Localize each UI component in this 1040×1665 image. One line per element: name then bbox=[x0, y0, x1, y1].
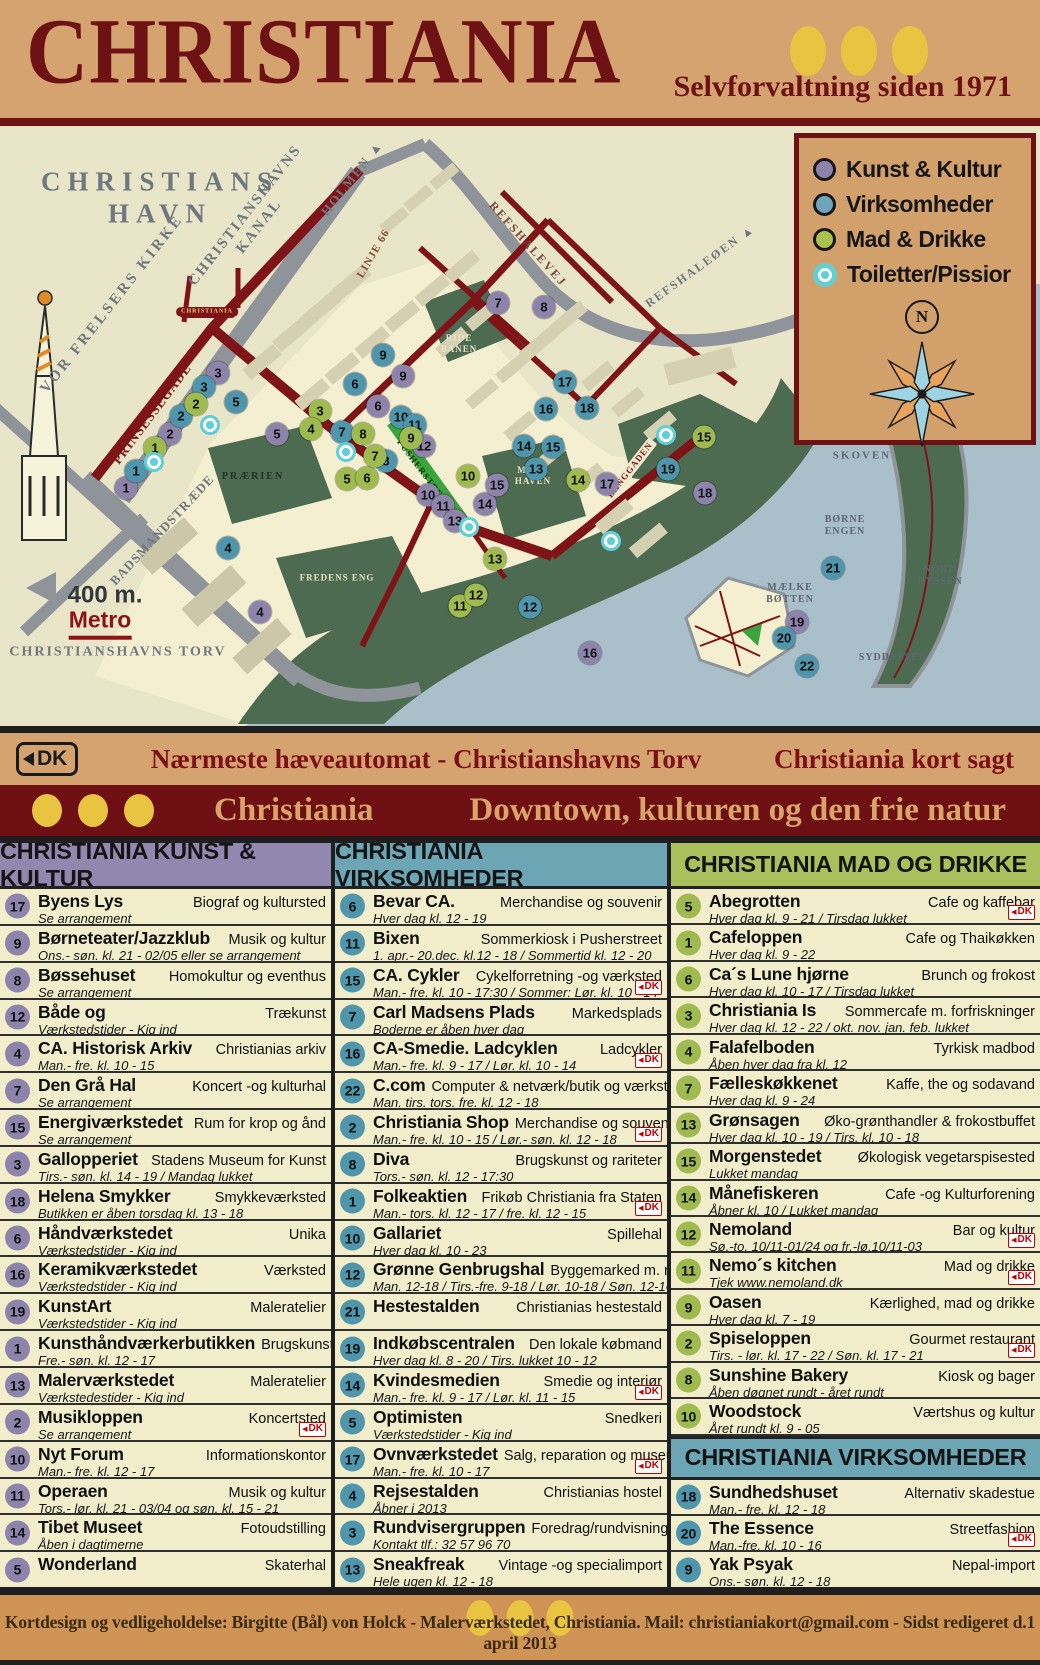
brand-name: Christiania bbox=[214, 792, 374, 829]
listing-hours: Hver dag kl. 9 - 24 bbox=[709, 1093, 1035, 1107]
map-label: RIDE BANEN bbox=[441, 333, 478, 355]
listing-row: 8Sunshine BakeryKiosk og bagerÅben døgne… bbox=[671, 1363, 1040, 1399]
listing-name: Sunshine Bakery bbox=[709, 1365, 848, 1386]
listing-row: 6HåndværkstedetUnikaVærkstedstider - Kig… bbox=[0, 1221, 331, 1258]
listing-row: 15CA. CyklerCykelforretning -og værksted… bbox=[335, 963, 667, 1000]
listing-category: Øko-grønthandler & frokostbuffet bbox=[818, 1114, 1035, 1130]
listing-row: 7Carl Madsens PladsMarkedspladsBoderne e… bbox=[335, 1000, 667, 1037]
listing-row: 3GallopperietStadens Museum for KunstTir… bbox=[0, 1147, 331, 1184]
listing-row: 10GallarietSpillehalHver dag kl. 10 - 23 bbox=[335, 1221, 667, 1258]
listing-name: The Essence bbox=[709, 1518, 814, 1539]
listing-hours: Se arrangement bbox=[38, 985, 326, 1000]
listing-number-badge: 2 bbox=[676, 1331, 701, 1356]
dankort-accepted-badge: DK bbox=[635, 1127, 662, 1142]
listing-hours: Sø.-to. 10/11-01/24 og fr.-lø.10/11-03 bbox=[709, 1239, 1035, 1253]
listing-name: Indkøbscentralen bbox=[373, 1333, 515, 1354]
legend-item: Mad & Drikke bbox=[813, 222, 1031, 257]
listing-category: Fotoudstilling bbox=[235, 1521, 326, 1537]
listing-number-badge: 13 bbox=[5, 1373, 30, 1398]
listing-category: Computer & netværk/butik og værksted bbox=[425, 1079, 667, 1095]
column-virksomheder: CHRISTIANIA VIRKSOMHEDER6Bevar CA.Mercha… bbox=[335, 843, 667, 1587]
listing-number-badge: 18 bbox=[676, 1484, 701, 1509]
dankort-accepted-badge: DK bbox=[1008, 1343, 1035, 1358]
listing-name: Operaen bbox=[38, 1481, 108, 1502]
numbered-map-marker: 9 bbox=[400, 427, 423, 450]
numbered-map-marker: 10 bbox=[457, 465, 480, 488]
listing-row: 7Den Grå HalKoncert -og kulturhalSe arra… bbox=[0, 1073, 331, 1110]
listing-hours: Ons.- søn. kl. 12 - 18 bbox=[709, 1574, 1035, 1586]
listing-name: Abegrotten bbox=[709, 891, 800, 912]
listing-category: Brunch og frokost bbox=[915, 968, 1035, 984]
listing-hours: Hver dag kl. 12 - 19 bbox=[373, 911, 662, 926]
listing-name: CA-Smedie. Ladcyklen bbox=[373, 1038, 558, 1059]
listing-name: Keramikværkstedet bbox=[38, 1259, 197, 1280]
listing-hours: Hver dag kl. 10 - 19 / Tirs. kl. 10 - 18 bbox=[709, 1130, 1035, 1144]
listing-category: Vintage -og specialimport bbox=[493, 1558, 662, 1574]
listing-row: 2MusikloppenKoncertstedSe arrangementDK bbox=[0, 1405, 331, 1442]
listing-name: Bøssehuset bbox=[38, 965, 135, 986]
dankort-accepted-badge: DK bbox=[1008, 1270, 1035, 1285]
listing-number-badge: 7 bbox=[340, 1004, 365, 1029]
legend-item: Toiletter/Pissior bbox=[813, 257, 1031, 292]
legend-label: Mad & Drikke bbox=[846, 226, 986, 253]
listing-row: 15MorgenstedetØkologisk vegetarspisested… bbox=[671, 1144, 1040, 1180]
credit-line: Kortdesign og vedligeholdelse: Birgitte … bbox=[0, 1612, 1040, 1654]
numbered-map-marker: 4 bbox=[217, 537, 240, 560]
listing-row: 9Yak PsyakNepal-importOns.- søn. kl. 12 … bbox=[671, 1552, 1040, 1586]
listing-row: 16KeramikværkstedetVærkstedVærkstedstide… bbox=[0, 1257, 331, 1294]
listing-row: 4FalafelbodenTyrkisk madbodÅben hver dag… bbox=[671, 1035, 1040, 1071]
numbered-map-marker: 17 bbox=[596, 473, 619, 496]
listing-name: Både og bbox=[38, 1002, 106, 1023]
listing-hours: Boderne er åben hver dag bbox=[373, 1022, 662, 1037]
listing-name: C.com bbox=[373, 1075, 425, 1096]
listing-number-badge: 9 bbox=[676, 1557, 701, 1582]
listing-name: Helena Smykker bbox=[38, 1186, 170, 1207]
listing-hours: Tjek www.nemoland.dk bbox=[709, 1275, 1035, 1289]
map-label: BØRNE ENGEN bbox=[825, 514, 866, 538]
listing-row: 2SpiseloppenGourmet restaurantTirs. - lø… bbox=[671, 1326, 1040, 1362]
listing-row: 1KunsthåndværkerbutikkenBrugskunstFre.- … bbox=[0, 1331, 331, 1368]
listing-row: 13MalerværkstedetMaleratelierVærkstedest… bbox=[0, 1368, 331, 1405]
listing-number-badge: 17 bbox=[340, 1447, 365, 1472]
numbered-map-marker: 13 bbox=[525, 458, 548, 481]
listing-name: Byens Lys bbox=[38, 891, 123, 912]
listing-number-badge: 5 bbox=[340, 1410, 365, 1435]
listing-category: Tyrkisk madbod bbox=[927, 1041, 1035, 1057]
numbered-map-marker: 7 bbox=[331, 421, 354, 444]
listing-number-badge: 1 bbox=[676, 930, 701, 955]
listing-name: Grønsagen bbox=[709, 1110, 800, 1131]
listing-hours: Hver dag kl. 8 - 20 / Tirs. lukket 10 - … bbox=[373, 1353, 662, 1368]
listing-row: 1CafeloppenCafe og ThaikøkkenHver dag kl… bbox=[671, 925, 1040, 961]
listing-number-badge: 10 bbox=[676, 1404, 701, 1429]
dankort-accepted-badge: DK bbox=[299, 1422, 326, 1437]
dankort-accepted-badge: DK bbox=[635, 1201, 662, 1216]
dankort-accepted-badge: DK bbox=[635, 1385, 662, 1400]
numbered-map-marker: 16 bbox=[535, 398, 558, 421]
map-label: CHRISTIANIA bbox=[176, 307, 238, 316]
numbered-map-marker: 18 bbox=[576, 397, 599, 420]
listing-row: 18SundhedshusetAlternativ skadestueMan.-… bbox=[671, 1480, 1040, 1516]
listing-number-badge: 14 bbox=[340, 1373, 365, 1398]
legend-label: Toiletter/Pissior bbox=[847, 261, 1011, 288]
listing-number-badge: 12 bbox=[340, 1262, 365, 1287]
legend-item: Virksomheder bbox=[813, 187, 1031, 222]
kort-sagt-text: Christiania kort sagt bbox=[774, 744, 1014, 775]
numbered-map-marker: 18 bbox=[694, 482, 717, 505]
atm-text: Nærmeste hæveautomat - Christianshavns T… bbox=[78, 744, 774, 775]
listing-name: Christiania Shop bbox=[373, 1112, 509, 1133]
listing-name: Fælleskøkkenet bbox=[709, 1073, 838, 1094]
numbered-map-marker: 19 bbox=[657, 458, 680, 481]
listing-name: Energiværkstedet bbox=[38, 1112, 183, 1133]
dankort-accepted-badge: DK bbox=[635, 980, 662, 995]
numbered-map-marker: 17 bbox=[554, 371, 577, 394]
listing-hours: Hver dag kl. 10 - 23 bbox=[373, 1243, 662, 1258]
numbered-map-marker: 15 bbox=[486, 474, 509, 497]
mad-drikke-circle-icon bbox=[813, 228, 836, 251]
three-dots-icon bbox=[790, 26, 928, 76]
listing-category: Markedsplads bbox=[566, 1006, 662, 1022]
listing-name: Rundvisergruppen bbox=[373, 1517, 525, 1538]
listing-category: Økologisk vegetarspisested bbox=[852, 1150, 1035, 1166]
listing-category: Merchandise og souvenir bbox=[494, 895, 662, 911]
listing-hours: Man. 12-18 / Tirs.-fre. 9-18 / Lør. 10-1… bbox=[373, 1279, 662, 1294]
listing-name: KunstArt bbox=[38, 1296, 111, 1317]
listing-category: Kaffe, the og sodavand bbox=[880, 1077, 1035, 1093]
column-mad: CHRISTIANIA MAD OG DRIKKE5AbegrottenCafe… bbox=[671, 843, 1040, 1587]
listing-hours: Se arrangement bbox=[38, 911, 326, 926]
numbered-map-marker: 14 bbox=[513, 435, 536, 458]
listing-category: Foredrag/rundvisning bbox=[525, 1521, 667, 1537]
numbered-map-marker: 15 bbox=[542, 436, 565, 459]
listing-row: 14Tibet MuseetFotoudstillingÅben i dagti… bbox=[0, 1515, 331, 1552]
listing-hours: Butikken er åben torsdag kl. 13 - 18 bbox=[38, 1206, 326, 1221]
listing-name: Musikloppen bbox=[38, 1407, 143, 1428]
listing-hours: Året rundt kl. 9 - 05 bbox=[709, 1421, 1035, 1435]
listing-number-badge: 1 bbox=[5, 1336, 30, 1361]
numbered-map-marker: 16 bbox=[579, 642, 602, 665]
listing-row: 6Bevar CA.Merchandise og souvenirHver da… bbox=[335, 889, 667, 926]
listing-row: 16CA-Smedie. LadcyklenLadcyklerMan.- fre… bbox=[335, 1036, 667, 1073]
listing-name: Månefiskeren bbox=[709, 1183, 818, 1204]
numbered-map-marker: 12 bbox=[519, 596, 542, 619]
listing-row: 18Helena SmykkerSmykkeværkstedButikken e… bbox=[0, 1184, 331, 1221]
listing-category: Spillehal bbox=[601, 1227, 662, 1243]
listing-name: Oasen bbox=[709, 1292, 762, 1313]
listing-hours: Fre.- søn. kl. 12 - 17 bbox=[38, 1353, 326, 1368]
listing-category: Christianias hestestald bbox=[510, 1300, 662, 1316]
legend-items: Kunst & KulturVirksomhederMad & DrikkeTo… bbox=[813, 152, 1031, 292]
listing-category: Brugskunst bbox=[255, 1337, 331, 1353]
toilet-marker bbox=[335, 441, 357, 463]
numbered-map-marker: 20 bbox=[773, 627, 796, 650]
listing-number-badge: 13 bbox=[676, 1112, 701, 1137]
listing-hours: 1. apr.- 20.dec. kl.12 - 18 / Sommertid … bbox=[373, 948, 662, 963]
legend-panel: Kunst & KulturVirksomhederMad & DrikkeTo… bbox=[794, 133, 1036, 445]
listing-number-badge: 11 bbox=[676, 1258, 701, 1283]
listing-hours: Værkstedstider - Kig ind bbox=[38, 1279, 326, 1294]
listing-name: Gallopperiet bbox=[38, 1149, 138, 1170]
listing-hours: Værkstedestider - Kig ind bbox=[38, 1390, 326, 1405]
listing-name: Hestestalden bbox=[373, 1296, 480, 1317]
listing-row: 3Christiania IsSommercafe m. forfrisknin… bbox=[671, 998, 1040, 1034]
numbered-map-marker: 15 bbox=[693, 426, 716, 449]
listing-category: Stadens Museum for Kunst bbox=[145, 1153, 326, 1169]
column-header: CHRISTIANIA VIRKSOMHEDER bbox=[335, 843, 667, 889]
listing-row: 8BøssehusetHomokultur og eventhusSe arra… bbox=[0, 963, 331, 1000]
listing-row: 12Grønne GenbrugshalByggemarked m. nyt/b… bbox=[335, 1257, 667, 1294]
listing-name: Falafelboden bbox=[709, 1037, 815, 1058]
map-label: SYDDYSSEN bbox=[859, 652, 927, 664]
toilet-ring-icon bbox=[813, 263, 837, 287]
map-canvas: CHRISTIANS HAVNVOR FRELSERS KIRKECHRISTI… bbox=[0, 126, 1040, 726]
listing-category: Musik og kultur bbox=[222, 1485, 326, 1501]
divider bbox=[0, 118, 1040, 126]
listing-name: Yak Psyak bbox=[709, 1554, 793, 1575]
listing-name: Kunsthåndværkerbutikken bbox=[38, 1333, 255, 1354]
numbered-map-marker: 21 bbox=[822, 557, 845, 580]
dankort-accepted-badge: DK bbox=[1008, 1532, 1035, 1547]
footer: Kortdesign og vedligeholdelse: Birgitte … bbox=[0, 1595, 1040, 1665]
listing-hours: Se arrangement bbox=[38, 1132, 326, 1147]
header: CHRISTIANIA Selvforvaltning siden 1971 bbox=[0, 0, 1040, 118]
listing-row: 7FælleskøkkenetKaffe, the og sodavandHve… bbox=[671, 1071, 1040, 1107]
listing-row: 5OptimistenSnedkeriVærkstedstider - Kig … bbox=[335, 1405, 667, 1442]
dankort-icon: DK bbox=[16, 742, 78, 776]
listing-number-badge: 14 bbox=[676, 1185, 701, 1210]
listing-category: Sommercafe m. forfriskninger bbox=[839, 1004, 1035, 1020]
numbered-map-marker: 7 bbox=[364, 445, 387, 468]
listing-name: Den Grå Hal bbox=[38, 1075, 136, 1096]
atm-banner: DK Nærmeste hæveautomat - Christianshavn… bbox=[0, 733, 1040, 785]
listing-row: 11Nemo´s kitchenMad og drikkeTjek www.ne… bbox=[671, 1253, 1040, 1289]
listing-name: Optimisten bbox=[373, 1407, 462, 1428]
listing-row: 11OperaenMusik og kulturTors.- lør. kl. … bbox=[0, 1479, 331, 1516]
listing-name: Håndværkstedet bbox=[38, 1223, 172, 1244]
kunst-kultur-circle-icon bbox=[813, 158, 836, 181]
listing-hours: Kontakt tlf.: 32 57 96 70 bbox=[373, 1537, 662, 1552]
listing-row: 11BixenSommerkiosk i Pusherstreet1. apr.… bbox=[335, 926, 667, 963]
listing-category: Sommerkiosk i Pusherstreet bbox=[475, 932, 662, 948]
listing-hours: Åben i dagtimerne bbox=[38, 1537, 326, 1552]
listing-name: Bixen bbox=[373, 928, 420, 949]
listing-hours: Ons.- søn. kl. 21 - 02/05 eller se arran… bbox=[38, 948, 326, 963]
listing-row: 1FolkeaktienFrikøb Christiania fra State… bbox=[335, 1184, 667, 1221]
listing-number-badge: 6 bbox=[340, 894, 365, 919]
listing-number-badge: 15 bbox=[676, 1149, 701, 1174]
listing-number-badge: 12 bbox=[676, 1222, 701, 1247]
numbered-map-marker: 5 bbox=[225, 391, 248, 414]
toilet-marker bbox=[655, 424, 677, 446]
listing-hours: Man.- fre. kl. 12 - 18 bbox=[709, 1502, 1035, 1516]
listing-name: Børneteater/Jazzklub bbox=[38, 928, 210, 949]
listing-name: Wonderland bbox=[38, 1554, 137, 1575]
listing-hours: Åbner i 2013 bbox=[373, 1501, 662, 1516]
numbered-map-marker: 6 bbox=[356, 467, 379, 490]
listing-name: Malerværkstedet bbox=[38, 1370, 174, 1391]
listing-category: Brugskunst og rariteter bbox=[509, 1153, 662, 1169]
numbered-map-marker: 9 bbox=[372, 344, 395, 367]
listing-number-badge: 20 bbox=[676, 1521, 701, 1546]
listing-number-badge: 19 bbox=[340, 1336, 365, 1361]
numbered-map-marker: 22 bbox=[796, 655, 819, 678]
map-label: NORD DYSSEN bbox=[917, 564, 962, 588]
listing-hours: Se arrangement bbox=[38, 1427, 326, 1442]
numbered-map-marker: 2 bbox=[185, 393, 208, 416]
listing-name: Woodstock bbox=[709, 1401, 801, 1422]
listing-name: Sundhedshuset bbox=[709, 1482, 838, 1503]
listing-hours: Værkstedstider - Kig ind bbox=[38, 1022, 326, 1037]
listing-name: Nemoland bbox=[709, 1219, 792, 1240]
listing-category: Cafe -og Kulturforening bbox=[879, 1187, 1035, 1203]
listing-number-badge: 6 bbox=[5, 1226, 30, 1251]
listing-category: Informationskontor bbox=[200, 1448, 326, 1464]
listing-number-badge: 9 bbox=[5, 931, 30, 956]
listing-category: Smykkeværksted bbox=[209, 1190, 326, 1206]
three-dots-icon bbox=[32, 794, 154, 827]
listing-name: CA. Historisk Arkiv bbox=[38, 1038, 192, 1059]
listing-row: 6Ca´s Lune hjørneBrunch og frokostHver d… bbox=[671, 962, 1040, 998]
listing-name: Folkeaktien bbox=[373, 1186, 467, 1207]
listing-row: 19KunstArtMaleratelierVærkstedstider - K… bbox=[0, 1294, 331, 1331]
listing-name: Tibet Museet bbox=[38, 1517, 142, 1538]
listing-name: Rejsestalden bbox=[373, 1481, 479, 1502]
listing-hours: Hver dag kl. 7 - 19 bbox=[709, 1312, 1035, 1326]
divider bbox=[0, 726, 1040, 733]
listing-hours: Åben hver dag fra kl. 12 bbox=[709, 1057, 1035, 1071]
listing-hours: Se arrangement bbox=[38, 1095, 326, 1110]
listing-hours: Man.- fre. kl. 9 - 17 / Lør. kl. 10 - 14 bbox=[373, 1058, 662, 1073]
listing-row: 22C.comComputer & netværk/butik og værks… bbox=[335, 1073, 667, 1110]
listing-hours: Man.- tors. kl. 12 - 17 / fre. kl. 12 - … bbox=[373, 1206, 662, 1221]
listing-name: Ca´s Lune hjørne bbox=[709, 964, 849, 985]
listing-hours: Man.- fre. kl. 9 - 17 / Lør. kl. 11 - 15 bbox=[373, 1390, 662, 1405]
listing-name: Nemo´s kitchen bbox=[709, 1255, 837, 1276]
listing-category: Unika bbox=[283, 1227, 326, 1243]
column-header: CHRISTIANIA MAD OG DRIKKE bbox=[671, 843, 1040, 889]
numbered-map-marker: 13 bbox=[484, 548, 507, 571]
listing-hours: Åbner kl. 10 / Lukket mandag bbox=[709, 1203, 1035, 1217]
listing-number-badge: 13 bbox=[340, 1557, 365, 1582]
listing-number-badge: 21 bbox=[340, 1299, 365, 1324]
dankort-accepted-badge: DK bbox=[635, 1459, 662, 1474]
numbered-map-marker: 14 bbox=[567, 469, 590, 492]
listing-category: Byggemarked m. nyt/brugt bbox=[544, 1263, 667, 1279]
listing-row: 4RejsestaldenChristianias hostelÅbner i … bbox=[335, 1479, 667, 1516]
listing-number-badge: 5 bbox=[676, 894, 701, 919]
tagline: Downtown, kulturen og den frie natur bbox=[469, 792, 1006, 829]
numbered-map-marker: 4 bbox=[249, 601, 272, 624]
listing-number-badge: 11 bbox=[5, 1483, 30, 1508]
virksomheder-circle-icon bbox=[813, 193, 836, 216]
map-label: FREDENS ENG bbox=[300, 573, 375, 584]
listing-category: Alternativ skadestue bbox=[898, 1486, 1035, 1502]
listing-hours: Hver dag kl. 9 - 22 bbox=[709, 947, 1035, 961]
listing-row: 9OasenKærlighed, mad og drikkeHver dag k… bbox=[671, 1290, 1040, 1326]
listing-number-badge: 3 bbox=[676, 1003, 701, 1028]
listing-name: Diva bbox=[373, 1149, 409, 1170]
listing-hours: Man.-fre. kl. 10 - 16 bbox=[709, 1538, 1035, 1552]
listing-category: Kærlighed, mad og drikke bbox=[864, 1296, 1035, 1312]
compass-rose-icon bbox=[864, 336, 980, 452]
listing-number-badge: 15 bbox=[340, 968, 365, 993]
subtitle: Selvforvaltning siden 1971 bbox=[674, 70, 1012, 104]
listing-hours: Værkstedstider - Kig ind bbox=[38, 1243, 326, 1258]
listing-name: CA. Cykler bbox=[373, 965, 460, 986]
listing-category: Værtshus og kultur bbox=[907, 1405, 1035, 1421]
listing-hours: Hver dag kl. 12 - 22 / okt. nov. jan. fe… bbox=[709, 1020, 1035, 1034]
listing-number-badge: 14 bbox=[5, 1520, 30, 1545]
listing-number-badge: 7 bbox=[5, 1078, 30, 1103]
legend-label: Kunst & Kultur bbox=[846, 156, 1001, 183]
listing-hours: Tirs. - lør. kl. 17 - 22 / Søn. kl. 17 -… bbox=[709, 1348, 1035, 1362]
listing-number-badge: 3 bbox=[5, 1152, 30, 1177]
listing-name: Bevar CA. bbox=[373, 891, 455, 912]
listing-number-badge: 6 bbox=[676, 967, 701, 992]
numbered-map-marker: 8 bbox=[352, 423, 375, 446]
listing-row: 4CA. Historisk ArkivChristianias arkivMa… bbox=[0, 1036, 331, 1073]
listing-name: Grønne Genbrugshal bbox=[373, 1259, 544, 1280]
listing-hours: Værkstedstider - Kig ind bbox=[373, 1427, 662, 1442]
dankort-accepted-badge: DK bbox=[1008, 905, 1035, 920]
listing-name: Kvindesmedien bbox=[373, 1370, 500, 1391]
listing-name: Spiseloppen bbox=[709, 1328, 811, 1349]
legend-item: Kunst & Kultur bbox=[813, 152, 1031, 187]
listing-category: Christianias arkiv bbox=[210, 1042, 326, 1058]
numbered-map-marker: 7 bbox=[487, 292, 510, 315]
listing-hours: Tors.- lør. kl. 21 - 03/04 og søn. kl. 1… bbox=[38, 1501, 326, 1516]
listing-row: 14KvindesmedienSmedie og interiørMan.- f… bbox=[335, 1368, 667, 1405]
toilet-marker bbox=[143, 451, 165, 473]
listing-name: Christiania Is bbox=[709, 1000, 816, 1021]
dankort-accepted-badge: DK bbox=[1008, 1233, 1035, 1248]
listing-number-badge: 3 bbox=[340, 1520, 365, 1545]
listing-number-badge: 7 bbox=[676, 1076, 701, 1101]
listing-category: Christianias hostel bbox=[538, 1485, 662, 1501]
listing-row: 8DivaBrugskunst og rariteterTors.- søn. … bbox=[335, 1147, 667, 1184]
listing-number-badge: 4 bbox=[676, 1039, 701, 1064]
column-header: CHRISTIANIA VIRKSOMHEDER bbox=[671, 1436, 1040, 1480]
numbered-map-marker: 5 bbox=[266, 423, 289, 446]
north-indicator: N bbox=[905, 300, 939, 334]
listing-number-badge: 1 bbox=[340, 1189, 365, 1214]
listing-category: Homokultur og eventhus bbox=[163, 969, 326, 985]
listing-row: 3RundvisergruppenForedrag/rundvisningKon… bbox=[335, 1515, 667, 1552]
listing-hours: Man.- fre. kl. 10 - 15 / Lør.- søn. kl. … bbox=[373, 1132, 662, 1147]
numbered-map-marker: 12 bbox=[465, 584, 488, 607]
listing-category: Nepal-import bbox=[946, 1558, 1035, 1574]
listing-category: Rum for krop og ånd bbox=[188, 1116, 326, 1132]
listing-row: 13SneakfreakVintage -og specialimportHel… bbox=[335, 1552, 667, 1587]
listing-number-badge: 12 bbox=[5, 1004, 30, 1029]
numbered-map-marker: 4 bbox=[300, 418, 323, 441]
listing-number-badge: 17 bbox=[5, 894, 30, 919]
listing-row: 12Både ogTrækunstVærkstedstider - Kig in… bbox=[0, 1000, 331, 1037]
listing-name: Morgenstedet bbox=[709, 1146, 821, 1167]
listing-category: Koncert -og kulturhal bbox=[186, 1079, 326, 1095]
listing-name: Gallariet bbox=[373, 1223, 441, 1244]
listing-name: Carl Madsens Plads bbox=[373, 1002, 535, 1023]
listing-category: Den lokale købmand bbox=[523, 1337, 662, 1353]
listing-hours: Man.- fre. kl. 10 - 15 bbox=[38, 1058, 326, 1073]
listing-name: Ovnværkstedet bbox=[373, 1444, 498, 1465]
listing-category: Maleratelier bbox=[244, 1374, 326, 1390]
listing-category: Frikøb Christiania fra Staten bbox=[475, 1190, 662, 1206]
listing-hours: Lukket mandag bbox=[709, 1166, 1035, 1180]
numbered-map-marker: 9 bbox=[392, 365, 415, 388]
